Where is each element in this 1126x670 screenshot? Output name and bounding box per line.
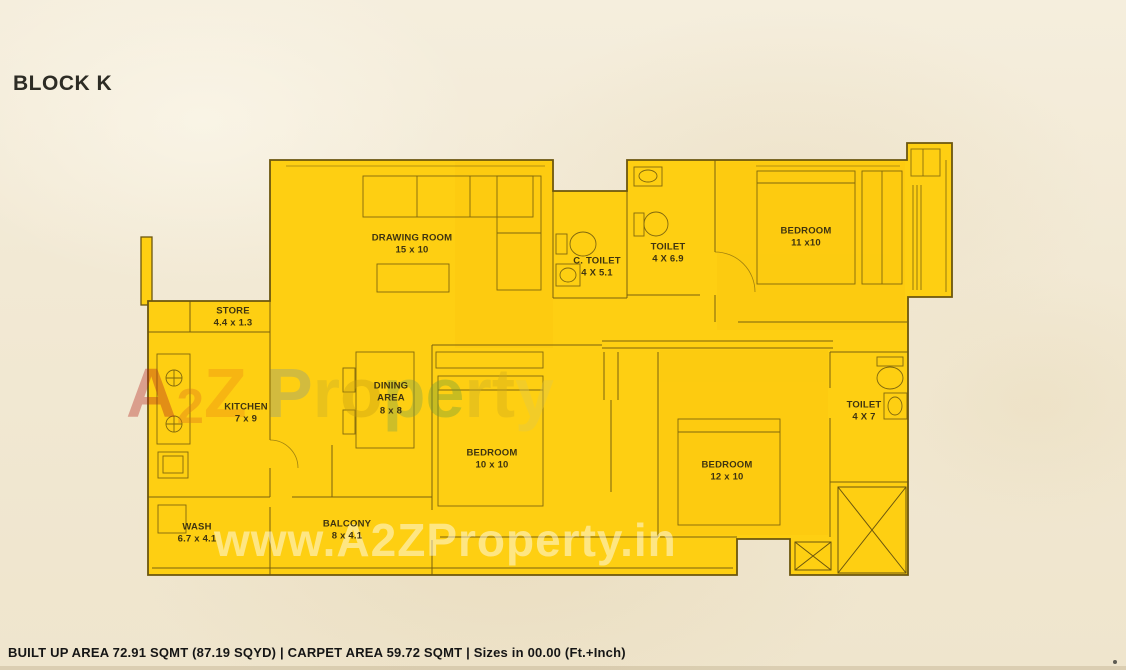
room-size: 4 X 7 (852, 412, 875, 424)
room-label-kitchen: KITCHEN 7 x 9 (224, 402, 268, 427)
room-label-drawing-room: DRAWING ROOM 15 x 10 (372, 233, 453, 258)
bottom-edge-shade (0, 666, 1126, 670)
room-label-bedroom-1: BEDROOM 11 x10 (780, 226, 831, 251)
room-name: KITCHEN (224, 402, 268, 414)
ink-speck (1113, 660, 1117, 664)
floor-plan-page: BLOCK K (0, 0, 1126, 670)
room-name: TOILET (651, 242, 686, 254)
room-label-wash: WASH 6.7 x 4.1 (178, 522, 217, 547)
room-label-toilet-2: TOILET 4 X 7 (847, 400, 882, 425)
room-size: 8 x 4.1 (332, 531, 362, 543)
room-size: 6.7 x 4.1 (178, 534, 217, 546)
room-label-store: STORE 4.4 x 1.3 (214, 306, 253, 331)
room-label-c-toilet: C. TOILET 4 X 5.1 (573, 256, 621, 281)
room-size: 4 X 5.1 (581, 268, 613, 280)
floor-plan-svg (0, 0, 1126, 670)
room-size: 12 x 10 (710, 472, 743, 484)
room-name: BEDROOM (466, 448, 517, 460)
room-label-bedroom-2: BEDROOM 10 x 10 (466, 448, 517, 473)
footer-area-info: BUILT UP AREA 72.91 SQMT (87.19 SQYD) | … (8, 645, 626, 660)
room-name: BEDROOM (780, 226, 831, 238)
room-name: C. TOILET (573, 256, 621, 268)
room-label-balcony: BALCONY 8 x 4.1 (323, 519, 371, 544)
room-size: 8 x 8 (380, 405, 402, 417)
room-name: DRAWING ROOM (372, 233, 453, 245)
room-size: 7 x 9 (235, 414, 257, 426)
room-name: STORE (216, 306, 250, 318)
room-label-dining-area: DINING AREA 8 x 8 (364, 380, 418, 417)
room-name: WASH (182, 522, 211, 534)
room-name: BALCONY (323, 519, 371, 531)
room-size: 4.4 x 1.3 (214, 318, 253, 330)
room-name: BEDROOM (701, 460, 752, 472)
room-label-toilet-1: TOILET 4 X 6.9 (651, 242, 686, 267)
room-label-bedroom-3: BEDROOM 12 x 10 (701, 460, 752, 485)
room-size: 4 X 6.9 (652, 254, 684, 266)
room-name: DINING AREA (364, 380, 418, 405)
room-size: 11 x10 (791, 238, 821, 250)
room-size: 10 x 10 (475, 460, 508, 472)
room-size: 15 x 10 (395, 245, 428, 257)
room-name: TOILET (847, 400, 882, 412)
